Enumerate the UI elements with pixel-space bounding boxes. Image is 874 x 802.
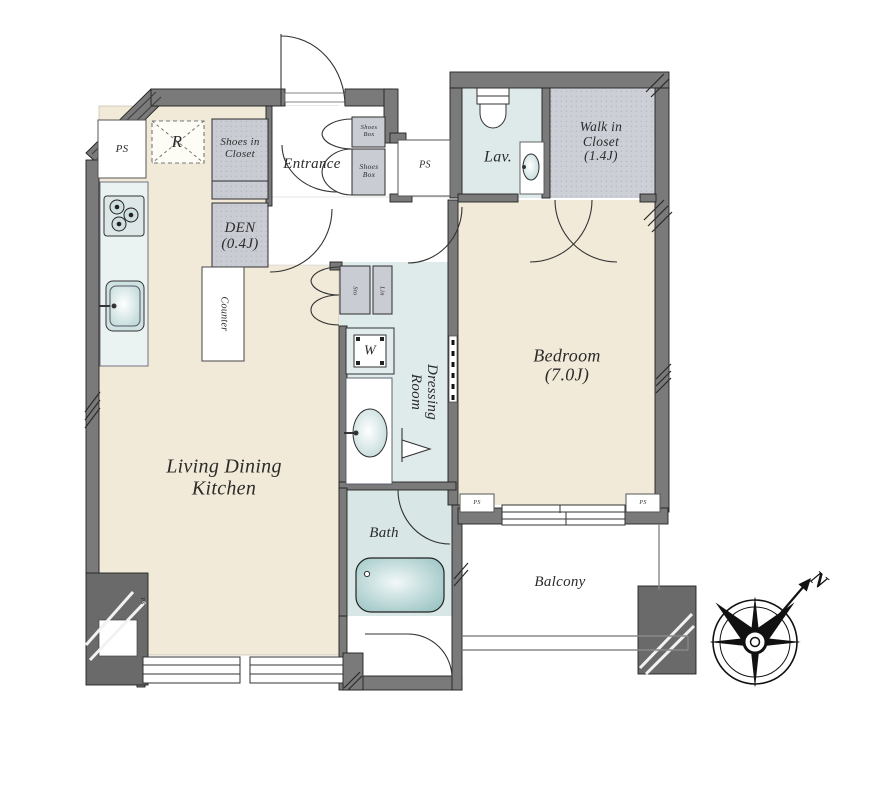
balcony-label: Balcony	[534, 574, 585, 590]
washer-label: W	[364, 343, 376, 358]
counter-label: Counter	[218, 297, 229, 332]
shoes-closet-label: Shoes in Closet	[220, 137, 259, 161]
ps-label-bedroom-right: PS	[639, 500, 646, 506]
walk-in-closet-label: Walk in Closet (1.4J)	[580, 120, 622, 164]
pillar-bottom-left	[86, 573, 148, 685]
living-dining-kitchen-label: Living Dining Kitchen	[166, 456, 282, 499]
storage-label: Sto	[351, 286, 358, 295]
ps-label-hall: PS	[419, 161, 431, 172]
ps-label-bedroom-left: PS	[473, 500, 480, 506]
bedroom-label: Bedroom (7.0J)	[533, 347, 600, 386]
ldk-window-left	[143, 657, 240, 683]
north-arrow	[768, 578, 811, 628]
ps-label-window: PS	[139, 597, 145, 604]
vanity-basin	[344, 378, 392, 484]
compass-icon	[709, 578, 811, 688]
stove-icon	[104, 196, 144, 236]
lavatory-label: Lav.	[484, 148, 512, 165]
floor-plan-page: PS R Shoes in Closet Entrance Shoes Box …	[0, 0, 874, 802]
entrance-threshold	[285, 93, 345, 102]
entrance-label: Entrance	[283, 156, 340, 172]
bedroom-window	[502, 505, 625, 525]
kitchen-sink-icon	[99, 281, 144, 331]
dressing-room-label: Dressing Room	[408, 364, 440, 420]
shoes-box-lower-label: Shoes Box	[360, 163, 379, 179]
bath-label: Bath	[369, 525, 399, 541]
pillar-balcony	[638, 586, 696, 674]
ldk-window-right	[250, 657, 343, 683]
ps-label-topleft: PS	[116, 144, 129, 156]
den-label: DEN (0.4J)	[221, 220, 258, 252]
refrigerator-label: R	[172, 133, 183, 151]
bathtub-icon	[356, 558, 444, 612]
linen-label: Lin	[378, 286, 385, 296]
shoes-box-upper-label: Shoes Box	[361, 124, 378, 138]
lavatory-basin	[520, 142, 544, 194]
bedroom-sliding-door	[449, 336, 457, 402]
kitchen-counter-strip	[99, 182, 148, 366]
